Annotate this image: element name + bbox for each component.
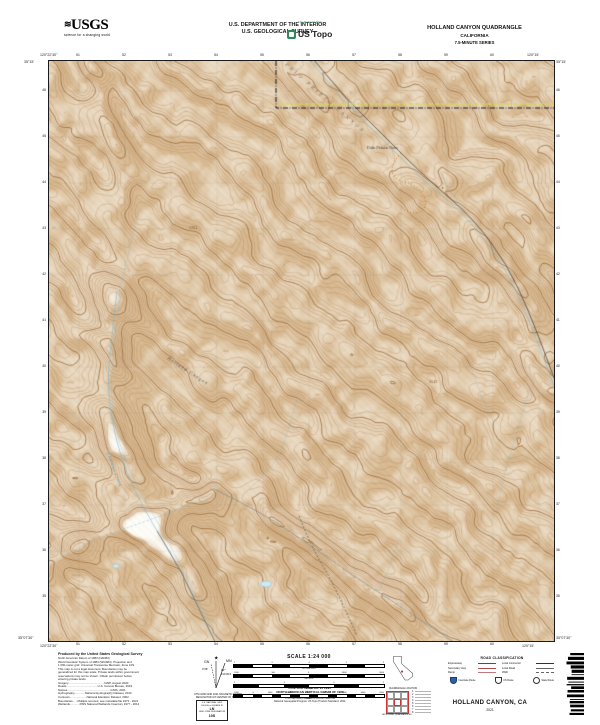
scale-tick-label: 1 xyxy=(234,682,235,684)
usgs-topo-sheet: { "header": { "usgs_logo_text": "USGS", … xyxy=(0,0,600,725)
ustopo-label: US Topo xyxy=(298,29,332,39)
utm-tick-label: 60 xyxy=(490,53,494,57)
road-line-sample xyxy=(478,668,496,669)
usng-zone: 10S xyxy=(197,714,227,718)
usgs-wave-icon: ≋ xyxy=(64,19,71,29)
route-shield-item: State Route xyxy=(533,677,554,684)
credit-line: Wetlands............FWS National Wetland… xyxy=(58,703,216,707)
scale-bar-segment xyxy=(309,675,328,677)
scale-tick-label: 1 xyxy=(234,662,235,664)
standard-note-2: National Geospatial Program US Topo Prod… xyxy=(225,700,395,703)
adjoining-grid-cell xyxy=(401,692,408,699)
utm-ticks-top: 51525354555657585960 xyxy=(48,53,553,59)
utm-tick-label: 57 xyxy=(352,53,356,57)
svg-text:MN: MN xyxy=(226,659,232,663)
scale-tick-label: .5 xyxy=(271,662,273,664)
road-line-sample xyxy=(536,672,554,673)
route-shield-item: Interstate Route xyxy=(450,677,476,684)
utm-tick-label: 54 xyxy=(214,53,218,57)
scale-bar-segment xyxy=(347,675,366,677)
interstate-shield-icon xyxy=(450,677,457,684)
utm-tick-label: 40 xyxy=(42,364,46,368)
scale-bar-segment xyxy=(328,675,347,677)
adjoining-grid-cell xyxy=(387,706,394,713)
scale-tick-label: 2000 xyxy=(379,672,384,674)
utm-tick-label: 55 xyxy=(260,642,264,646)
sheet-title: HOLLAND CANYON, CA xyxy=(415,700,565,706)
utm-tick-label: 39 xyxy=(42,410,46,414)
route-shield-label: Interstate Route xyxy=(459,679,476,682)
scale-bar-segment xyxy=(365,675,384,677)
route-shield-label: State Route xyxy=(541,679,554,682)
utm-tick-label: 59 xyxy=(444,642,448,646)
utm-tick-label: 51 xyxy=(76,53,80,57)
road-legend-row: Secondary HwyLocal Road xyxy=(448,667,556,670)
scale-bar-row: 1000500010002000METERS xyxy=(233,672,385,681)
map-region xyxy=(48,60,555,642)
utm-tick-label: 45 xyxy=(42,134,46,138)
adjoining-grid-cell xyxy=(394,699,401,706)
scale-bar-segment xyxy=(328,665,347,667)
road-legend-row: ExpresswayLocal Connector xyxy=(448,662,556,665)
utm-ticks-left: 464544434241403938373635 xyxy=(30,60,46,640)
utm-tick-label: 56 xyxy=(306,642,310,646)
california-outline xyxy=(388,656,418,682)
scale-bar-unit: KILOMETERS xyxy=(233,668,385,670)
scale-bar-segment xyxy=(234,675,253,677)
scale-bar-row: 1.5012KILOMETERS xyxy=(233,662,385,671)
utm-tick-label: 40 xyxy=(556,364,560,368)
utm-tick-label: 44 xyxy=(42,180,46,184)
road-classification-title: ROAD CLASSIFICATION xyxy=(448,656,556,660)
adjoining-quads-grid xyxy=(386,691,409,714)
utm-tick-label: 46 xyxy=(42,88,46,92)
scale-bar-unit: METERS xyxy=(233,678,385,680)
scale-title: SCALE 1:24 000 xyxy=(233,654,385,660)
utm-tick-label: 52 xyxy=(122,642,126,646)
quadrangle-title-block: HOLLAND CANYON QUADRANGLE CALIFORNIA 7.5… xyxy=(382,25,567,45)
usng-box: U.S. NATIONAL GRID 100,000-m SQUARE ID L… xyxy=(196,700,228,721)
utm-tick-label: 38 xyxy=(42,456,46,460)
svg-text:12°: 12° xyxy=(221,668,226,672)
topographic-map-canvas xyxy=(49,61,554,641)
adjoining-grid-cell xyxy=(387,699,394,706)
scale-tick-label: 1000 xyxy=(342,672,347,674)
scale-bar-segment xyxy=(290,675,309,677)
utm-tick-label: 57 xyxy=(352,642,356,646)
scale-tick-label: 1 xyxy=(383,682,384,684)
usgs-tagline: science for a changing world xyxy=(64,33,128,37)
ustopo-icon xyxy=(287,30,296,39)
ustopo-logo: The National Map US Topo xyxy=(287,21,347,42)
road-line-sample xyxy=(478,663,496,664)
utm-tick-label: 45 xyxy=(556,134,560,138)
utm-tick-label: 59 xyxy=(444,53,448,57)
road-label: Local Road xyxy=(502,667,536,670)
road-classification-rows: ExpresswayLocal ConnectorSecondary HwyLo… xyxy=(448,662,556,675)
scale-bar-segment xyxy=(290,665,309,667)
route-shield-label: US Route xyxy=(503,679,513,682)
route-shield-row: Interstate RouteUS RouteState Route xyxy=(448,677,556,684)
road-line-sample xyxy=(478,672,496,673)
utm-tick-label: 60 xyxy=(490,642,494,646)
scale-bar-segment xyxy=(234,665,253,667)
scale-tick-label: .5 xyxy=(283,682,285,684)
quad-location-dot xyxy=(401,671,403,673)
scale-tick-label: 0 xyxy=(333,682,334,684)
national-map-label: The National Map xyxy=(298,21,347,24)
utm-tick-label: 43 xyxy=(556,226,560,230)
utm-tick-label: 56 xyxy=(306,53,310,57)
road-label: Local Connector xyxy=(502,662,536,665)
dept-line2: U.S. GEOLOGICAL SURVEY xyxy=(150,29,405,36)
adjoining-grid-cell xyxy=(394,692,401,699)
usgs-logo-text: ≋USGS xyxy=(64,17,128,33)
utm-tick-label: 44 xyxy=(556,180,560,184)
standard-note: This map was produced to conform with th… xyxy=(225,697,395,703)
scale-bar-segment xyxy=(253,665,272,667)
utm-tick-label: 37 xyxy=(556,502,560,506)
road-line-sample xyxy=(536,663,554,664)
scale-bar-segment xyxy=(309,665,328,667)
road-line-sample xyxy=(536,668,554,669)
utm-tick-label: 53 xyxy=(168,53,172,57)
utm-tick-label: 35 xyxy=(556,594,560,598)
utm-tick-label: 55 xyxy=(260,53,264,57)
route-shield-item: US Route xyxy=(495,677,514,684)
road-classification-legend: ROAD CLASSIFICATION ExpresswayLocal Conn… xyxy=(448,656,556,684)
adjoining-grid-cell xyxy=(401,706,408,713)
scale-tick-label: 0 xyxy=(309,662,310,664)
utm-tick-label: 42 xyxy=(556,272,560,276)
adjoining-grid-cell xyxy=(401,699,408,706)
quad-series: 7.5-MINUTE SERIES xyxy=(382,40,567,45)
utm-tick-label: 58 xyxy=(398,53,402,57)
scale-tick-label: 2 xyxy=(383,662,384,664)
scale-bar-segment xyxy=(272,675,291,677)
scale-bar-segment xyxy=(272,665,291,667)
road-label: Expressway xyxy=(448,662,478,665)
us-shield-icon xyxy=(495,677,502,684)
utm-tick-label: 42 xyxy=(42,272,46,276)
state-shield-icon xyxy=(533,677,540,684)
utm-tick-label: 43 xyxy=(42,226,46,230)
utm-tick-label: 52 xyxy=(122,53,126,57)
scale-tick-label: 1 xyxy=(346,662,347,664)
utm-tick-label: 36 xyxy=(556,548,560,552)
scale-tick-label: 500 xyxy=(272,672,275,674)
utm-tick-label: 37 xyxy=(42,502,46,506)
utm-tick-label: 54 xyxy=(214,642,218,646)
vertical-datum-line: NORTH AMERICAN VERTICAL DATUM OF 1988 xyxy=(225,691,395,695)
scale-bars: 1.5012KILOMETERS1000500010002000METERS1.… xyxy=(233,662,385,701)
utm-tick-label: 51 xyxy=(76,642,80,646)
adjoining-quads-caption: ADJOINING QUADRANGLES xyxy=(374,714,420,716)
svg-text:GN: GN xyxy=(204,660,210,664)
utm-tick-label: 41 xyxy=(556,318,560,322)
department-heading: U.S. DEPARTMENT OF THE INTERIOR U.S. GEO… xyxy=(150,22,405,35)
adjoining-grid-cell xyxy=(387,692,394,699)
utm-tick-label: 36 xyxy=(42,548,46,552)
sheet-year: 2021 xyxy=(415,708,565,712)
utm-tick-label: 39 xyxy=(556,410,560,414)
utm-tick-label: 35 xyxy=(42,594,46,598)
scale-bar-segment xyxy=(365,665,384,667)
scale-tick-label: 0 xyxy=(308,672,309,674)
svg-text:213 MILS: 213 MILS xyxy=(221,673,232,676)
state-locator: QUADRANGLE LOCATION xyxy=(385,656,421,690)
contour-interval-note: CONTOUR INTERVAL 20 FEET NORTH AMERICAN … xyxy=(225,687,395,695)
utm-ticks-right: 464544434241403938373635 xyxy=(556,60,572,640)
adjoining-grid-cell xyxy=(394,706,401,713)
utm-tick-label: 41 xyxy=(42,318,46,322)
utm-tick-label: 38 xyxy=(556,456,560,460)
svg-text:0°28': 0°28' xyxy=(202,667,208,671)
road-label: Secondary Hwy xyxy=(448,667,478,670)
road-label: Ramp xyxy=(448,671,478,674)
scale-bar-segment xyxy=(347,665,366,667)
true-north-star: ★ xyxy=(214,656,219,662)
barcode-strip xyxy=(566,653,584,715)
scale-bar-segment xyxy=(253,675,272,677)
utm-tick-label: 53 xyxy=(168,642,172,646)
utm-tick-label: 58 xyxy=(398,642,402,646)
utm-ticks-bottom: 51525354555657585960 xyxy=(48,642,553,648)
scale-tick-label: 1000 xyxy=(234,672,239,674)
road-legend-row: Ramp4WD xyxy=(448,671,556,674)
road-label: 4WD xyxy=(502,671,536,674)
usgs-logo: ≋USGS science for a changing world xyxy=(64,17,128,43)
quad-title: HOLLAND CANYON QUADRANGLE xyxy=(382,25,567,31)
quad-state: CALIFORNIA xyxy=(382,33,567,38)
sheet-title-block: HOLLAND CANYON, CA 2021 xyxy=(415,700,565,712)
utm-tick-label: 46 xyxy=(556,88,560,92)
